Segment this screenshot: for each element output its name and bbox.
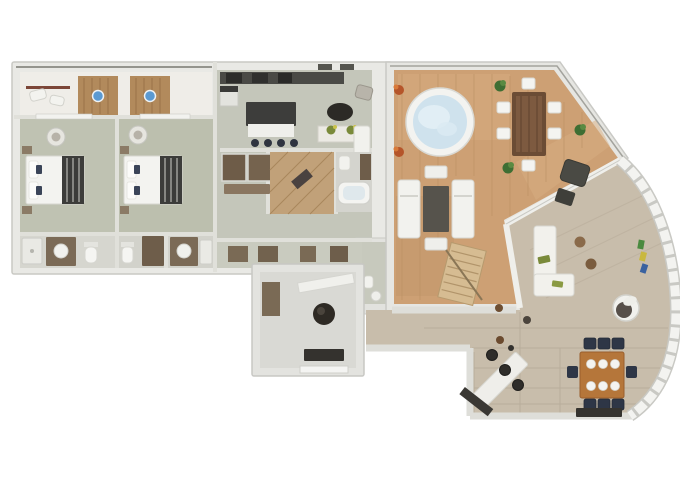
bath1-toilet-tank [84,242,98,247]
sofa-chaise [534,226,556,280]
side-pouf-b [586,259,597,270]
bed2-cushion-b [134,186,140,195]
bath1-toilet [85,247,97,263]
dining-plate-5 [599,382,608,391]
kitchen-stool-3 [277,139,285,147]
bed1-cushion-b [36,186,42,195]
dining-plate-4 [587,382,596,391]
shower-stall-a [222,154,246,181]
outdoor-chair-2 [497,128,510,139]
kitchen-island-base [248,124,294,137]
dining-chair-t2 [598,338,610,349]
bath2-shower [200,240,212,264]
ensuite-toilet [339,156,350,170]
hall-door-d [330,246,348,262]
dining-plate-3 [611,360,620,369]
foyer-table [313,303,335,325]
kitchen-appliance-c [278,73,292,83]
ensuite-vanity [360,154,371,180]
dining-plate-6 [611,382,620,391]
kitchen-stool-4 [290,139,298,147]
terrace-plant-a2 [500,80,506,86]
breakfast-table [327,103,353,121]
bar-cup [508,345,514,351]
bed1-cushion-a [36,165,42,174]
bedroom1-glass-door [36,114,92,119]
hall-door-b [258,246,278,262]
outdoor-chair-1 [497,102,510,113]
bath2-toilet [122,247,133,263]
outdoor-chair-3 [548,102,561,113]
decor-vase-a [523,316,531,324]
bed2-armchair-seat [134,131,143,140]
bath2-sink [177,244,191,258]
balcony-table-left [93,91,104,102]
kitchen-appliance-b [252,73,268,83]
dining-plate-2 [599,360,608,369]
kitchen-appliance-a [226,73,242,83]
bed1-nightstand-b [22,206,32,214]
bath1-shower-drain [30,249,34,253]
jacuzzi-swirl-b [437,122,457,136]
bar-bottle [496,336,504,344]
terrace-plant-d2 [394,85,399,90]
bath2-cabinet [142,236,164,266]
outdoor-chair-4 [548,128,561,139]
terrace-plant-b2 [580,124,586,130]
ensuite-tub-water [343,186,365,200]
terrace-plant-e2 [394,147,399,152]
hall-door-a [228,246,248,262]
foyer-entry-door [300,366,348,373]
kitchen-tall-unit-top [220,86,238,92]
bed2-cushion-a [134,165,140,174]
dining-chair-t1 [584,338,596,349]
bath1-sink [54,244,68,258]
outdoor-chair-6 [522,160,535,171]
vestibule-sink [371,291,381,301]
foyer-entry-mat [304,349,344,361]
balcony-table-right [145,91,156,102]
dining-chair-right [626,366,637,378]
hall-door-c [300,246,316,262]
side-pouf-a [575,237,586,248]
bed1-nightstand-a [22,146,32,154]
bath2-toilet-tank [121,242,134,247]
kitchen-window-a [318,64,332,70]
floor-plan: 3D rendered apartment suite floor plan [0,0,680,486]
sun-lounger-right [452,180,474,238]
dining-plate-1 [587,360,596,369]
bar-stool-3 [513,380,524,391]
outdoor-chair-5 [522,78,535,89]
foyer-table-highlight [317,307,325,315]
kitchen-island-counter [246,102,296,126]
lounger-side-table-a [425,166,447,178]
foyer-wardrobe [262,282,280,316]
bed2-nightstand-a [120,146,129,154]
decor-vase-b [495,304,503,312]
kitchen-window-b [340,64,354,70]
lounger-side-table-b [425,238,447,250]
shower-stall-b [248,154,272,181]
dining-sideboard [576,408,622,417]
terrace-plant-c2 [508,162,514,168]
dining-table [580,352,624,398]
bed2-nightstand-b [120,206,129,214]
sun-lounger-left [398,180,420,238]
kitchen-stool-1 [251,139,259,147]
kitchen-bar-bloom-a [333,125,337,129]
dining-chair-left [567,366,578,378]
balcony-planter [26,86,70,89]
floor-plan-canvas [0,0,680,486]
vestibule-toilet [364,276,373,288]
dining-chair-t3 [612,338,624,349]
kitchen-stool-2 [264,139,272,147]
lounger-mat [423,186,449,232]
bar-stool-2 [500,365,511,376]
shower-bench [224,184,270,194]
bed1-armchair-seat [52,133,61,142]
bar-stool-1 [487,350,498,361]
bedroom2-glass-door [140,114,190,119]
